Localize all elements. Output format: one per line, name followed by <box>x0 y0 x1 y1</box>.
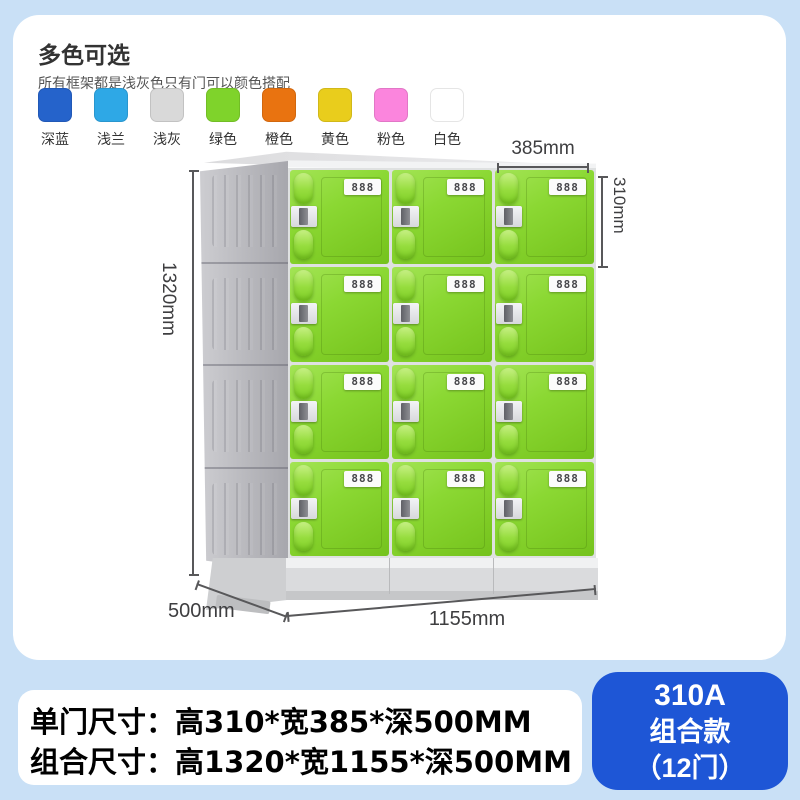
door-hinge-icon <box>499 368 518 399</box>
dimension-door-height-line <box>601 176 603 268</box>
door-hinge-icon <box>294 270 313 301</box>
door-hinge-icon <box>294 173 313 204</box>
dimension-door-height-label: 310mm <box>609 177 629 269</box>
dimension-total-height-label: 1320mm <box>157 262 179 336</box>
door-hinge-icon <box>499 327 518 356</box>
handle-slot <box>299 403 308 420</box>
locker-door: 888 <box>495 365 594 459</box>
door-number-plate: 888 <box>344 374 381 390</box>
door-handle <box>496 498 522 519</box>
color-chip <box>262 88 296 122</box>
color-swatch-green: 绿色 <box>195 88 251 149</box>
locker-door: 888 <box>392 462 491 556</box>
side-module <box>200 366 288 469</box>
dimension-depth-label: 500mm <box>168 600 235 623</box>
color-swatch-deep-blue: 深蓝 <box>27 88 83 149</box>
locker-door: 888 <box>392 170 491 264</box>
door-hinge-icon <box>499 465 518 496</box>
door-hinge-icon <box>396 465 415 496</box>
color-chip-label: 粉色 <box>377 129 405 149</box>
door-number-plate: 888 <box>447 374 484 390</box>
dimension-door-width-line <box>497 166 589 168</box>
door-hinge-icon <box>294 327 313 356</box>
door-handle <box>291 303 317 324</box>
handle-slot <box>504 500 513 517</box>
dimension-total-width-label: 1155mm <box>410 608 524 631</box>
locker-door: 888 <box>495 462 594 556</box>
color-chip <box>94 88 128 122</box>
door-hinge-icon <box>396 425 415 454</box>
door-handle <box>291 206 317 227</box>
locker-side-panel <box>200 161 288 571</box>
locker-door: 888 <box>290 365 389 459</box>
color-chip <box>206 88 240 122</box>
door-handle <box>496 401 522 422</box>
door-hinge-icon <box>499 173 518 204</box>
color-chip <box>374 88 408 122</box>
color-swatch-row: 深蓝 浅兰 浅灰 绿色 橙色 黄色 粉色 白色 <box>27 88 475 149</box>
door-number-plate: 888 <box>549 276 586 292</box>
locker-door: 888 <box>290 462 389 556</box>
color-swatch-white: 白色 <box>419 88 475 149</box>
color-chip <box>430 88 464 122</box>
door-handle <box>393 206 419 227</box>
door-hinge-icon <box>396 327 415 356</box>
locker-door: 888 <box>290 267 389 361</box>
locker-front-face: 888 888 888 888 888 888 888 <box>288 168 596 558</box>
door-hinge-icon <box>294 230 313 259</box>
door-number-plate: 888 <box>549 374 586 390</box>
door-hinge-icon <box>294 522 313 551</box>
locker-door: 888 <box>392 365 491 459</box>
color-swatch-yellow: 黄色 <box>307 88 363 149</box>
model-number: 310A <box>654 676 726 716</box>
door-number-plate: 888 <box>344 179 381 195</box>
color-chip-label: 浅灰 <box>153 129 181 149</box>
door-number-plate: 888 <box>549 179 586 195</box>
door-hinge-icon <box>396 270 415 301</box>
color-chip <box>38 88 72 122</box>
door-handle <box>291 401 317 422</box>
locker-door: 888 <box>495 267 594 361</box>
spec-combined-size: 组合尺寸：高1320*宽1155*深500MM <box>30 739 572 781</box>
handle-slot <box>299 500 308 517</box>
color-chip-label: 黄色 <box>321 129 349 149</box>
dimension-total-height-line <box>192 170 194 576</box>
door-hinge-icon <box>294 465 313 496</box>
door-handle <box>393 498 419 519</box>
door-number-plate: 888 <box>549 471 586 487</box>
handle-slot <box>401 305 410 322</box>
locker-door: 888 <box>392 267 491 361</box>
color-chip-label: 深蓝 <box>41 129 69 149</box>
handle-slot <box>401 403 410 420</box>
door-number-plate: 888 <box>344 471 381 487</box>
door-handle <box>393 303 419 324</box>
color-options-title: 多色可选 <box>38 36 130 70</box>
door-number-plate: 888 <box>447 179 484 195</box>
door-hinge-icon <box>294 425 313 454</box>
color-swatch-orange: 橙色 <box>251 88 307 149</box>
door-hinge-icon <box>499 270 518 301</box>
color-chip-label: 橙色 <box>265 129 293 149</box>
color-swatch-pink: 粉色 <box>363 88 419 149</box>
side-module <box>200 469 288 572</box>
door-hinge-icon <box>396 368 415 399</box>
handle-slot <box>299 208 308 225</box>
door-hinge-icon <box>499 230 518 259</box>
door-handle <box>496 303 522 324</box>
side-module <box>200 161 288 264</box>
plinth-separator <box>389 558 390 594</box>
side-module <box>200 264 288 367</box>
handle-slot <box>504 305 513 322</box>
color-chip-label: 绿色 <box>209 129 237 149</box>
color-chip <box>150 88 184 122</box>
door-number-plate: 888 <box>447 471 484 487</box>
door-hinge-icon <box>396 173 415 204</box>
spec-single-door-size: 单门尺寸：高310*宽385*深500MM <box>30 699 532 741</box>
door-number-plate: 888 <box>344 276 381 292</box>
handle-slot <box>401 208 410 225</box>
color-chip-label: 白色 <box>433 129 461 149</box>
dimension-door-width-label: 385mm <box>492 138 594 160</box>
handle-slot <box>401 500 410 517</box>
door-hinge-icon <box>294 368 313 399</box>
door-handle <box>291 498 317 519</box>
door-hinge-icon <box>499 425 518 454</box>
locker-door: 888 <box>495 170 594 264</box>
door-hinge-icon <box>396 522 415 551</box>
handle-slot <box>504 403 513 420</box>
model-door-count: （12门） <box>634 751 745 787</box>
model-series: 组合款 <box>650 715 731 751</box>
model-badge: 310A 组合款 （12门） <box>592 672 788 790</box>
door-handle <box>393 401 419 422</box>
handle-slot <box>504 208 513 225</box>
door-hinge-icon <box>396 230 415 259</box>
locker-door: 888 <box>290 170 389 264</box>
door-number-plate: 888 <box>447 276 484 292</box>
plinth-separator <box>493 558 494 594</box>
handle-slot <box>299 305 308 322</box>
color-chip <box>318 88 352 122</box>
color-swatch-light-blue: 浅兰 <box>83 88 139 149</box>
color-chip-label: 浅兰 <box>97 129 125 149</box>
color-swatch-light-gray: 浅灰 <box>139 88 195 149</box>
door-handle <box>496 206 522 227</box>
door-hinge-icon <box>499 522 518 551</box>
